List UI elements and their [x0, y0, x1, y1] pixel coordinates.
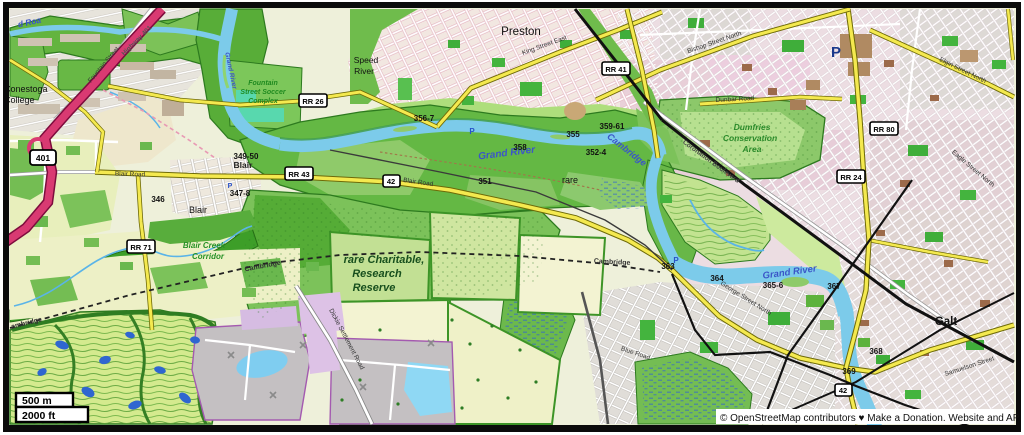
svg-text:42: 42	[387, 177, 395, 186]
svg-text:42: 42	[839, 386, 847, 395]
svg-text:RR 26: RR 26	[302, 97, 323, 106]
svg-text:River: River	[354, 66, 374, 76]
svg-text:349-50: 349-50	[234, 152, 259, 161]
svg-text:359-61: 359-61	[600, 122, 625, 131]
svg-text:347-8: 347-8	[230, 189, 251, 198]
svg-text:RR 71: RR 71	[130, 243, 151, 252]
svg-text:351: 351	[478, 177, 492, 186]
svg-text:RR 43: RR 43	[288, 170, 309, 179]
svg-text:RR 41: RR 41	[605, 65, 626, 74]
svg-text:Galt: Galt	[935, 316, 958, 328]
svg-text:RR 80: RR 80	[873, 125, 894, 134]
svg-text:Street Soccer: Street Soccer	[240, 89, 286, 96]
svg-text:Complex: Complex	[248, 98, 279, 105]
svg-text:P: P	[831, 44, 841, 61]
svg-text:367: 367	[827, 282, 841, 291]
svg-text:358: 358	[513, 143, 527, 152]
svg-text:346: 346	[151, 195, 165, 204]
svg-text:369: 369	[842, 367, 856, 376]
svg-text:Blair Creek: Blair Creek	[183, 241, 226, 250]
svg-text:P: P	[469, 127, 475, 136]
svg-text:500 m: 500 m	[22, 395, 52, 407]
svg-text:© OpenStreetMap contributors ♥: © OpenStreetMap contributors ♥ Make a Do…	[720, 413, 1020, 424]
svg-text:Conservation: Conservation	[723, 133, 777, 143]
svg-text:rare: rare	[562, 175, 578, 185]
svg-text:Blair: Blair	[189, 205, 207, 215]
svg-text:rare Charitable,: rare Charitable,	[344, 254, 425, 266]
svg-text:355: 355	[566, 130, 580, 139]
svg-text:Blair: Blair	[234, 160, 254, 170]
svg-text:356-7: 356-7	[414, 114, 435, 123]
svg-text:Conestoga: Conestoga	[4, 84, 48, 94]
svg-text:Corridor: Corridor	[192, 252, 225, 261]
svg-text:368: 368	[869, 347, 883, 356]
svg-text:401: 401	[36, 153, 50, 163]
svg-text:P: P	[673, 256, 679, 265]
svg-text:Fountain: Fountain	[248, 80, 278, 87]
svg-text:365-6: 365-6	[763, 281, 784, 290]
svg-text:Reserve: Reserve	[353, 282, 396, 294]
svg-text:2000 ft: 2000 ft	[22, 410, 56, 422]
svg-text:Preston: Preston	[501, 26, 541, 38]
svg-text:P: P	[228, 183, 233, 190]
svg-text:Dumfries: Dumfries	[734, 122, 771, 132]
svg-text:352-4: 352-4	[586, 148, 607, 157]
svg-text:Research: Research	[352, 268, 402, 280]
svg-text:Blair Road: Blair Road	[115, 170, 146, 178]
svg-text:Area: Area	[742, 144, 762, 154]
svg-text:RR 24: RR 24	[840, 173, 862, 182]
svg-text:Speed: Speed	[354, 55, 379, 65]
